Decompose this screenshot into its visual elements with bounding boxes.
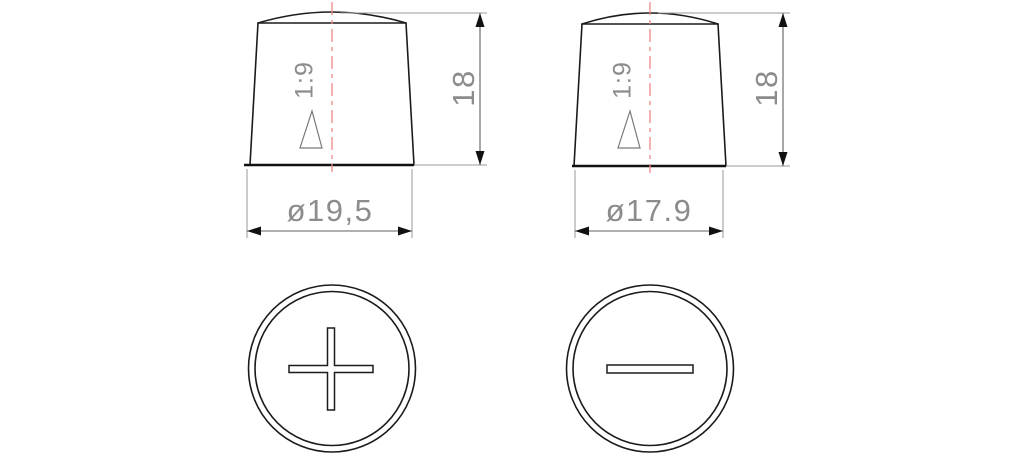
battery-terminal-drawing: 1:9 18 ø19,5 xyxy=(0,0,1024,469)
negative-post-top-view xyxy=(567,285,734,452)
taper-annotation: 1:9 xyxy=(291,61,322,148)
taper-label: 1:9 xyxy=(609,61,637,99)
height-label: 18 xyxy=(446,69,481,106)
arrow-right-icon xyxy=(709,227,723,236)
right-taper-edge xyxy=(406,23,414,165)
taper-label: 1:9 xyxy=(291,61,319,99)
technical-drawing-canvas: 1:9 18 ø19,5 xyxy=(0,0,1024,469)
left-taper-edge xyxy=(574,24,582,166)
taper-triangle-icon xyxy=(618,111,640,148)
arrow-left-icon xyxy=(247,227,261,236)
taper-annotation: 1:9 xyxy=(609,61,640,148)
diameter-dimension: ø19,5 xyxy=(247,169,412,238)
arrow-right-icon xyxy=(398,227,412,236)
height-label: 18 xyxy=(749,69,784,106)
left-taper-edge xyxy=(250,23,258,165)
diameter-dimension: ø17.9 xyxy=(575,170,723,238)
negative-post-side-view: 1:9 18 ø17.9 xyxy=(572,2,790,238)
diameter-label: ø17.9 xyxy=(606,193,693,228)
positive-post-side-view: 1:9 18 ø19,5 xyxy=(244,2,487,238)
positive-post-top-view xyxy=(249,285,416,452)
diameter-label: ø19,5 xyxy=(287,193,374,228)
arrow-left-icon xyxy=(575,227,589,236)
arrow-down-icon xyxy=(779,152,788,166)
arrow-up-icon xyxy=(476,13,485,27)
minus-symbol xyxy=(607,365,693,373)
arrow-up-icon xyxy=(779,13,788,27)
taper-triangle-icon xyxy=(300,111,322,148)
arrow-down-icon xyxy=(476,151,485,165)
plus-symbol xyxy=(289,328,373,410)
right-taper-edge xyxy=(718,24,726,166)
